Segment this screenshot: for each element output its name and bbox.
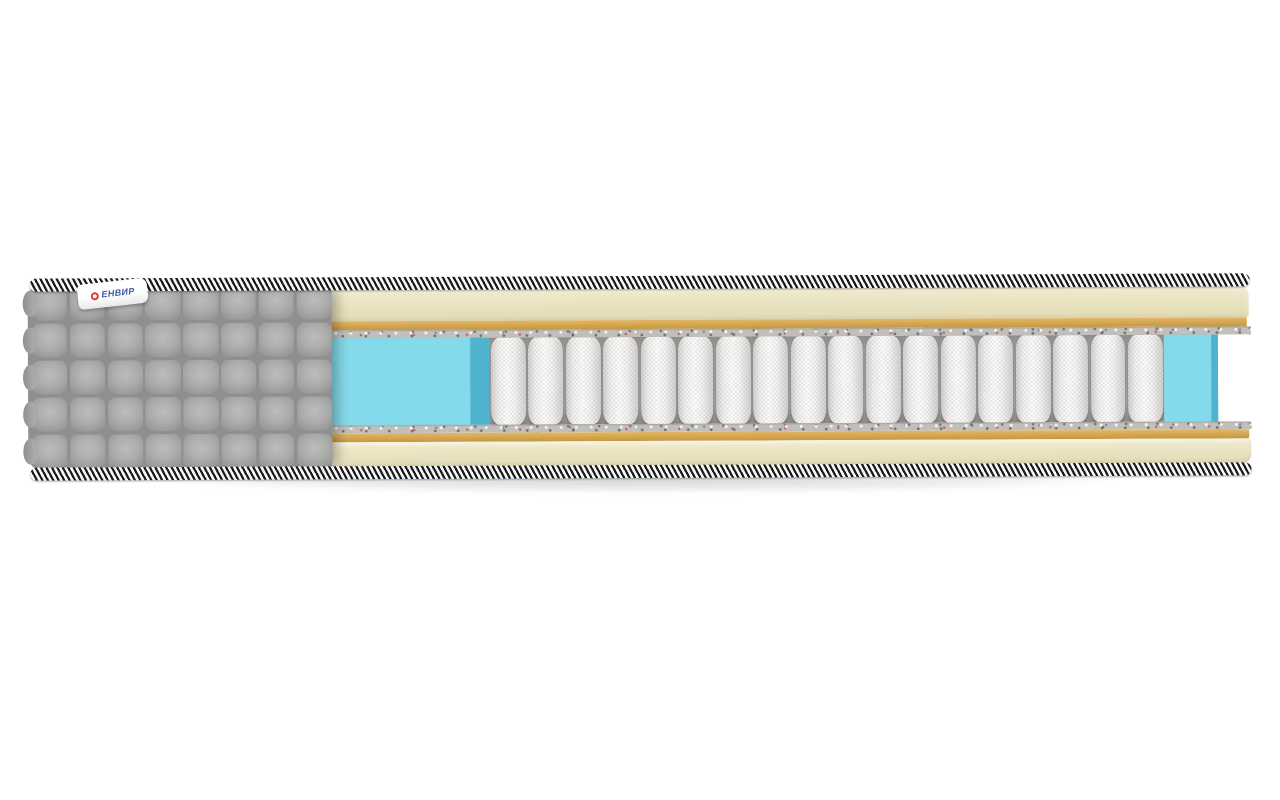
quilt-cell	[145, 360, 180, 395]
quilt-cell	[70, 323, 105, 358]
pocket-spring	[603, 337, 638, 424]
quilt-cell	[184, 433, 219, 468]
quilt-cell	[70, 360, 105, 395]
quilt-cell	[258, 286, 293, 321]
quilt-cell	[297, 396, 332, 431]
quilt-cell	[107, 323, 142, 358]
quilt-edge-scallop	[23, 327, 38, 353]
pocket-spring	[716, 337, 751, 424]
quilt-cell	[296, 285, 331, 320]
pocket-spring	[828, 336, 863, 423]
quilt-cell	[108, 434, 143, 469]
quilt-cell	[145, 323, 180, 358]
foam-layer-top-cream	[332, 284, 1249, 321]
quilt-cell	[70, 434, 105, 469]
quilt-cell	[259, 396, 294, 431]
quilt-edge-scallop	[23, 290, 38, 316]
quilt-cell	[183, 323, 218, 358]
pocket-spring	[1053, 335, 1088, 422]
quilt-cell	[297, 359, 332, 394]
pocket-spring	[678, 337, 713, 424]
quilt-cell	[146, 434, 181, 469]
pocket-spring	[1015, 335, 1050, 422]
quilt-cell	[183, 397, 218, 432]
quilt-cell	[259, 322, 294, 357]
quilt-cell	[297, 433, 332, 468]
quilt-cell	[70, 397, 105, 432]
pocket-spring	[940, 336, 975, 423]
pocket-spring	[866, 336, 901, 423]
mattress: ЕНВИР	[28, 269, 1253, 480]
spring-cavity	[332, 334, 1218, 425]
perimeter-foam-right	[1164, 334, 1218, 421]
pocket-spring	[1128, 335, 1163, 422]
quilt-cell	[259, 433, 294, 468]
quilt-cell	[183, 286, 218, 321]
quilt-cell	[221, 359, 256, 394]
product-photo-mattress-cutaway: ЕНВИР	[0, 0, 1280, 800]
pocket-spring	[641, 337, 676, 424]
quilt-cell	[221, 286, 256, 321]
pocket-spring	[753, 336, 788, 423]
quilted-cover	[28, 283, 333, 470]
pocket-spring	[978, 335, 1013, 422]
quilt-cell	[108, 397, 143, 432]
perimeter-foam-left	[332, 338, 490, 426]
brand-tag-label: ЕНВИР	[101, 287, 135, 300]
quilt-edge-scallop	[23, 365, 38, 391]
brand-logo-icon	[90, 291, 99, 300]
quilt-cell	[108, 360, 143, 395]
quilt-cell	[221, 433, 256, 468]
pocket-spring	[791, 336, 826, 423]
quilt-cell	[296, 322, 331, 357]
quilt-cell	[145, 286, 180, 321]
quilt-cell	[221, 396, 256, 431]
quilt-cell	[259, 359, 294, 394]
quilt-pattern	[28, 283, 333, 470]
quilt-cell	[146, 397, 181, 432]
pocket-spring	[903, 336, 938, 423]
pocket-spring	[491, 337, 526, 424]
quilt-cell	[183, 360, 218, 395]
pocket-spring	[566, 337, 601, 424]
pocket-spring-block	[490, 335, 1164, 425]
quilt-cell	[221, 323, 256, 358]
pocket-spring	[528, 337, 563, 424]
pocket-spring	[1090, 335, 1125, 422]
